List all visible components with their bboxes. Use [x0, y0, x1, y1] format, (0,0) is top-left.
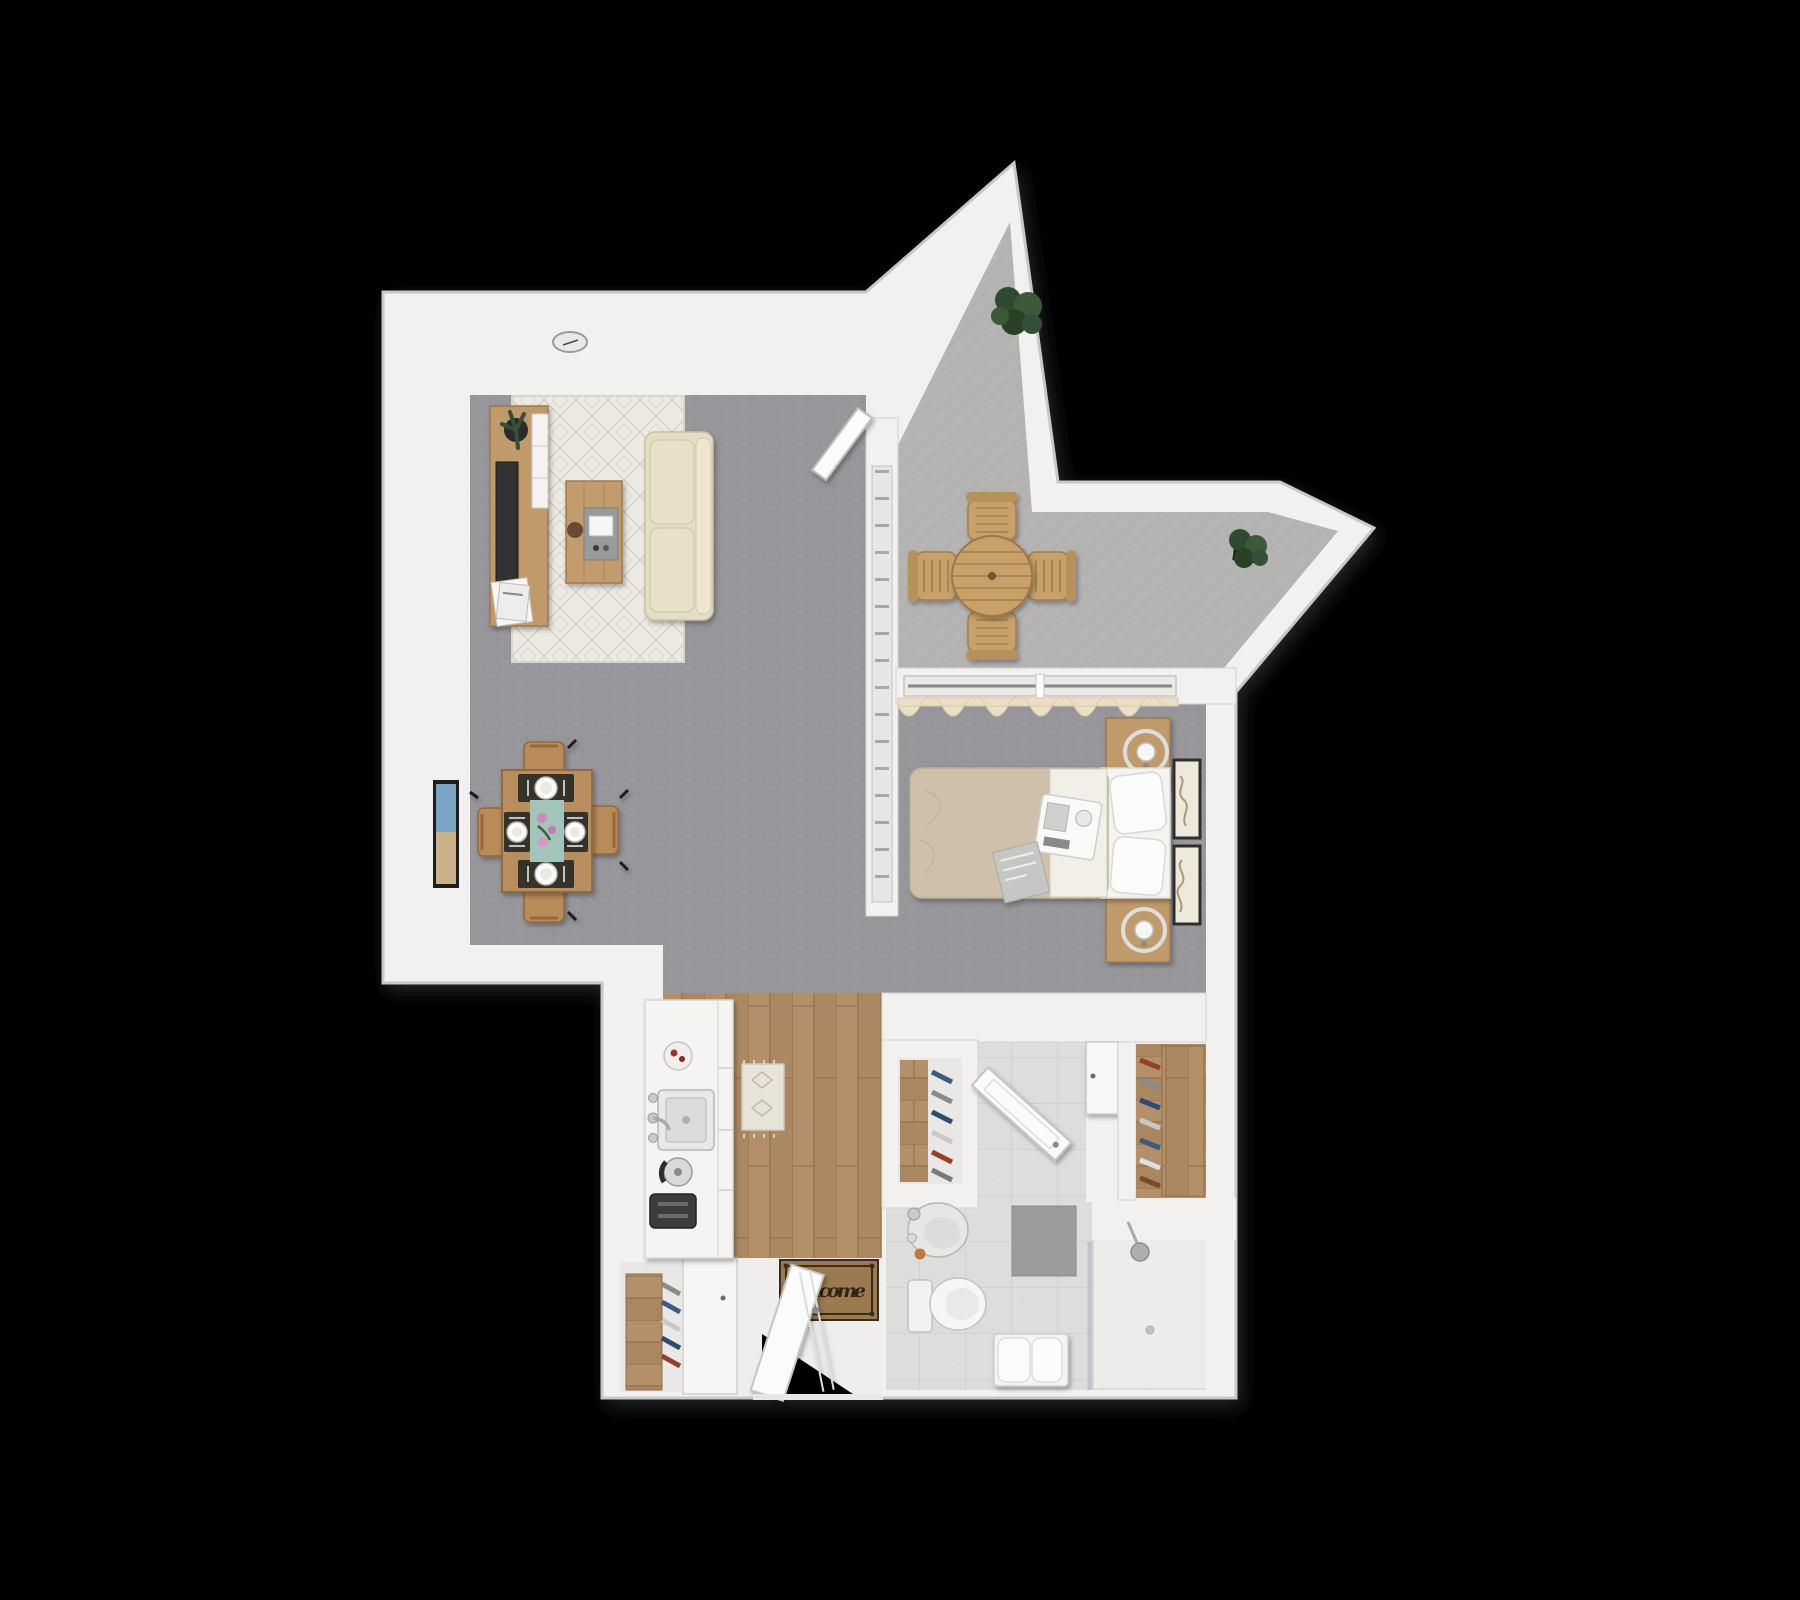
counter-end-cabinet	[683, 1258, 737, 1394]
lamp-bulb	[1137, 743, 1155, 761]
nightstand-south	[1106, 898, 1170, 962]
cup	[915, 1249, 926, 1260]
sofa-back	[696, 438, 711, 614]
plate-center	[540, 782, 552, 794]
cabinet-handle	[721, 1296, 726, 1301]
food-plate	[664, 1042, 692, 1070]
lamp-dot	[1141, 941, 1147, 947]
plate-center	[570, 827, 580, 837]
table-runner	[530, 800, 564, 862]
toaster	[650, 1194, 696, 1228]
towel-bench	[994, 1334, 1068, 1386]
bath-mat	[1012, 1206, 1076, 1276]
sliding-door-divider	[1036, 674, 1044, 698]
walk-in-closet-left-wall	[1118, 1042, 1136, 1200]
patio-chair-west	[908, 550, 956, 602]
console-drawers	[532, 414, 548, 508]
faucet-handle	[649, 1094, 658, 1103]
plate-center	[540, 868, 552, 880]
shower-drain	[1146, 1326, 1154, 1334]
toilet-tank	[908, 1280, 932, 1332]
bedroom-south-wall	[882, 993, 1206, 1042]
tray-dot	[593, 545, 599, 551]
pillow	[1109, 771, 1168, 835]
soap	[908, 1234, 917, 1243]
entry-closet-shelf	[626, 1274, 662, 1390]
sink-faucet	[908, 1208, 920, 1220]
entry-closet	[620, 1262, 684, 1392]
breakfast-tray	[1034, 794, 1102, 861]
media-console	[490, 406, 548, 626]
wall-picture-lower	[1174, 846, 1200, 924]
tray-dot	[603, 545, 609, 551]
closet-bottom-wall	[1092, 1198, 1236, 1240]
tray-card	[589, 516, 613, 536]
wall-picture-upper	[1174, 760, 1200, 838]
shower-floor	[1094, 1240, 1206, 1388]
food-bits	[679, 1056, 685, 1062]
floor-plan-render: welcome	[0, 0, 1800, 1600]
patio-table	[952, 536, 1032, 616]
shoe-closet	[882, 1040, 978, 1208]
patio-chair-south	[966, 612, 1018, 660]
kitchen	[645, 1000, 733, 1258]
sofa-cushion	[650, 528, 694, 612]
wall-cabinet	[1086, 1042, 1118, 1114]
art-sky	[436, 784, 456, 832]
kitchen-sink	[648, 1090, 714, 1150]
floor-plan-svg: welcome	[0, 0, 1800, 1600]
coffee-table	[566, 481, 622, 583]
wall-cabinet-handle	[1091, 1074, 1096, 1079]
towel	[1032, 1338, 1062, 1382]
sofa	[645, 432, 713, 620]
walk-in-closet-shelf	[1162, 1046, 1204, 1196]
bed	[910, 768, 1170, 903]
magazines	[491, 578, 533, 627]
walk-in-closet	[1118, 1042, 1206, 1200]
pillow	[1110, 836, 1167, 896]
toilet	[908, 1278, 986, 1332]
shower-head	[1131, 1243, 1149, 1261]
towel	[998, 1338, 1030, 1382]
shoe-closet-shelf	[900, 1060, 928, 1182]
patio-chair-east	[1028, 550, 1076, 602]
door-sill	[753, 1394, 883, 1400]
hall-runner-rug	[742, 1060, 784, 1138]
faucet-handle	[649, 1134, 658, 1143]
plate-center	[512, 827, 522, 837]
patio-chair-north	[966, 492, 1018, 540]
wood-coaster	[567, 522, 583, 538]
dining-window-art	[433, 780, 459, 888]
lamp-bulb	[1135, 921, 1153, 939]
tv	[496, 462, 518, 584]
sofa-cushion	[650, 440, 694, 524]
food-bits	[671, 1050, 678, 1057]
balcony-window-glass	[872, 466, 892, 902]
art-ground	[436, 832, 456, 884]
dining-table	[502, 770, 592, 892]
